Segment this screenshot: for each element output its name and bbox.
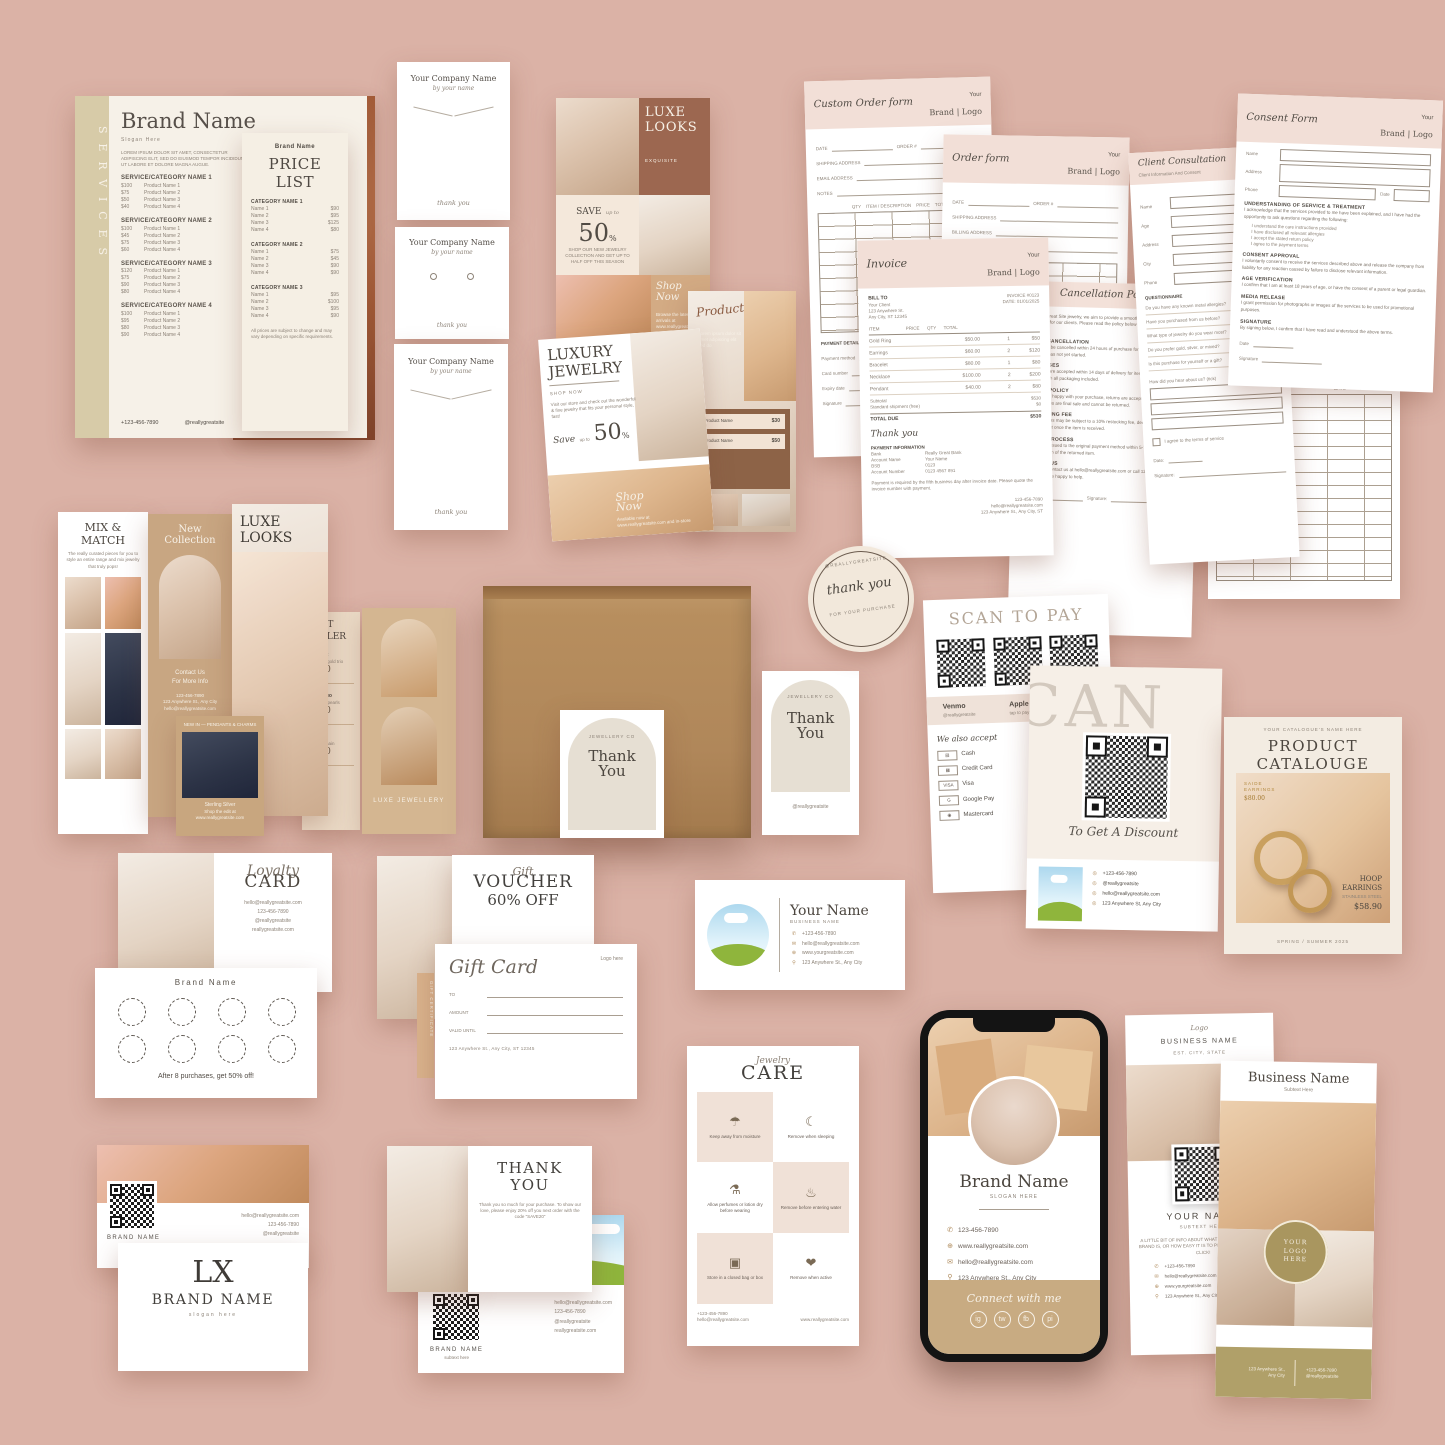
care-tile-grid: ☂ Keep away from moisture ☾ Remove when …: [697, 1092, 849, 1304]
logo-landscape-circle: [707, 904, 769, 966]
invoice-page: Invoice YourBrand | Logo BILL TO Your Cl…: [857, 237, 1054, 558]
care-title: CARE: [697, 1062, 849, 1084]
logo-script: Logo: [1134, 1023, 1264, 1035]
phone-brand-name: Brand Name: [928, 1172, 1100, 1192]
thank-you-card-front: THANK YOU Thank you so much for your pur…: [468, 1146, 592, 1292]
logo-landscape-thumb: [1038, 867, 1083, 922]
display-stand-card: LUXE JEWELLERY: [362, 608, 456, 834]
business-name-sub: BUSINESS NAME: [790, 919, 869, 925]
care-icon: ♨: [805, 1185, 817, 1201]
template-bundle-collage: SERVICES Brand Name Slogan Here LOREM IP…: [0, 0, 1445, 1445]
social-icons: igtwfbpi: [928, 1311, 1100, 1328]
connect-with-me: Connect with me: [928, 1292, 1100, 1305]
mix-match-title: MIX &: [65, 521, 141, 534]
scan-discount-card: SCAN To Get A Discount ◎+123-456-7890◎@r…: [1026, 665, 1223, 931]
gift-card-script: Gift Card: [449, 956, 538, 978]
rack-business-name: BUSINESS NAME: [1134, 1036, 1264, 1048]
scan-ghost-text: SCAN: [1026, 670, 1168, 741]
brand-logo: Brand | Logo: [987, 268, 1040, 278]
thank-you-photo-panel: [387, 1146, 471, 1292]
luxury-subtitle: SHOP NOW: [550, 385, 636, 397]
thank-you-script: thank you: [394, 508, 508, 517]
save-label: SAVE: [576, 207, 601, 217]
jewelry-care-card: Jewelry CARE ☂ Keep away from moisture ☾…: [687, 1046, 859, 1346]
contact-cta: Contact Us: [155, 669, 225, 678]
thanks-back-brand: BRAND NAME: [430, 1346, 483, 1355]
lx-brand-name: BRAND NAME: [118, 1292, 308, 1308]
qr-code: [430, 1291, 482, 1343]
discount-script: To Get A Discount: [1027, 823, 1219, 840]
care-icon: ☂: [729, 1114, 741, 1130]
services-handle: @reallygreatsite: [184, 420, 224, 428]
product-catalogue-cover: YOUR CATALOGUE'S NAME HERE PRODUCT CATAL…: [1224, 717, 1402, 954]
voucher-title: VOUCHER: [452, 872, 594, 892]
catalogue-footer: SPRING / SUMMER 2025: [1224, 939, 1402, 945]
necklace-hook-lines: [412, 384, 490, 434]
thanks-back-contacts: hello@reallygreatsite.com123-456-7890@re…: [554, 1297, 612, 1361]
loyalty-card-back: Brand Name After 8 purchases, get 50% of…: [95, 968, 317, 1098]
thank-you-title: THANK: [478, 1160, 582, 1177]
luxe-story-title: LUXE: [240, 514, 281, 530]
invoice-title: Invoice: [867, 257, 908, 271]
photo-tile: [65, 633, 101, 725]
pendant-collage-card: NEW IN — PENDANTS & CHARMS Sterling Silv…: [176, 716, 264, 836]
rack-front-business: Business Name: [1227, 1071, 1371, 1088]
price-category: CATEGORY NAME 2 Name 1$75 Name 2$45 Name…: [251, 242, 339, 277]
brand-logo: Brand | Logo: [1067, 167, 1120, 177]
jewellery-co-label: JEWELLERY CO: [568, 734, 656, 740]
catalogue-title: PRODUCT: [1236, 737, 1390, 755]
thank-you-sticker: @REALLYGREATSITE thank you FOR YOUR PURC…: [801, 539, 921, 659]
brand-logo: Brand | Logo: [1380, 128, 1433, 139]
loyalty-back-brand: Brand Name: [105, 978, 307, 989]
display-caption: LUXE JEWELLERY: [370, 797, 448, 806]
photo-model-white: [639, 195, 710, 275]
voucher-discount: 60% OFF: [452, 892, 594, 909]
client-consult-title: Client Consultation: [1138, 154, 1227, 170]
box-thank-you-label: JEWELLERY CO Thank You: [560, 710, 664, 838]
photo-tile: [65, 729, 101, 779]
luxury-body: Visit our store and check out the wonder…: [551, 396, 638, 420]
lx-monogram: LX: [118, 1255, 308, 1290]
phone-notch: [973, 1018, 1055, 1032]
lx-back-contacts: hello@reallygreatsite.com123-456-7890@re…: [241, 1211, 299, 1243]
discount-contact-list: ◎+123-456-7890◎@reallygreatsite◎hello@re…: [1090, 867, 1207, 923]
photo-arch-portrait: [159, 555, 221, 659]
qr-code: [933, 635, 989, 691]
invoice-thanks: Thank you: [871, 427, 1042, 442]
luxe-title: LUXE: [645, 106, 704, 121]
care-icon: ❤: [806, 1255, 817, 1271]
brand-logo: Brand | Logo: [929, 107, 982, 117]
gift-voucher-card: Gift VOUCHER 60% OFF: [452, 855, 594, 952]
price-list-brand: Brand Name: [251, 143, 339, 152]
care-website: www.reallygreatsite.com: [800, 1317, 849, 1323]
catalogue-photo: SAIDE EARRINGS $80.00 HOOP EARRINGS STAI…: [1236, 773, 1390, 923]
lx-slogan: slogan here: [118, 1312, 308, 1319]
photo-pendants: [182, 732, 258, 798]
scan-to-pay-title: SCAN TO PAY: [932, 604, 1100, 629]
photo-tile: [105, 729, 141, 779]
gift-card: Gift Card Logo here TO AMOUNT VALID UNTI…: [435, 944, 637, 1099]
mix-match-body: The really curated pieces for you to sty…: [65, 551, 141, 569]
qr-code-large: [1082, 732, 1172, 822]
hoop-earring: [1288, 869, 1332, 913]
order-form-title: Order form: [952, 152, 1009, 165]
tag-handle: @reallygreatsite: [771, 804, 850, 811]
photo-tile: [105, 633, 141, 725]
photo-outfit: [630, 329, 709, 462]
photo-tile: [65, 577, 101, 629]
price-category: CATEGORY NAME 1 Name 1$90 Name 2$95 Name…: [251, 199, 339, 234]
consent-title: Consent Form: [1246, 112, 1318, 127]
company-name: Your Company Name: [401, 238, 503, 249]
luxe-subtitle: EXQUISITE: [645, 158, 704, 164]
business-card-contacts: ✆+123-456-7890✉hello@reallygreatsite.com…: [790, 931, 869, 967]
photo-woman-posed: [1218, 1101, 1376, 1232]
gift-certificate-strip: GIFT CERTIFICATE: [417, 973, 434, 1078]
box-lid-edge: [483, 586, 751, 599]
care-email: hello@reallygreatsite.com: [697, 1317, 749, 1323]
phone-mockup: Brand Name SLOGAN HERE ✆123-456-7890⊕www…: [920, 1010, 1108, 1362]
thank-you-hang-tag: JEWELLERY CO Thank You @reallygreatsite: [762, 671, 859, 835]
luxe-looks-grid-post: LUXE LOOKS EXQUISITE SAVE up to 50% SHOP…: [556, 98, 710, 343]
necklace-display-card-2: Your Company Name by your name thank you: [394, 344, 508, 530]
save-script: Save: [553, 435, 576, 447]
photo-necklace-model: [744, 291, 796, 401]
qr-code: [107, 1181, 157, 1231]
company-byline: by your name: [403, 85, 504, 94]
logo-placeholder: Logo here: [599, 956, 623, 963]
price-category-list: CATEGORY NAME 1 Name 1$90 Name 2$95 Name…: [251, 199, 339, 320]
intro-text: LOREM IPSUM DOLOR SIT AMET, CONSECTETUR …: [121, 150, 251, 168]
mix-match-card: MIX & MATCH The really curated pieces fo…: [58, 512, 148, 834]
necklace-display-card-1: Your Company Name by your name thank you: [397, 62, 510, 220]
gift-card-address: 123 Anywhere St., Any City, ST 12345: [449, 1046, 623, 1052]
brand-name-title: Brand Name: [121, 109, 355, 133]
price-list-card: Brand Name PRICE LIST CATEGORY NAME 1 Na…: [242, 133, 348, 431]
price-category: CATEGORY NAME 3 Name 1$95 Name 2$100 Nam…: [251, 285, 339, 320]
photo-tile: [105, 577, 141, 629]
loyalty-contacts: hello@reallygreatsite.com123-456-7890@re…: [220, 900, 326, 934]
earring-display-card: Your Company Name by your name thank you: [395, 227, 509, 339]
photo-woman-portrait: [556, 98, 639, 195]
person-name: Your Name: [790, 903, 869, 919]
services-side-label: SERVICES: [75, 126, 109, 265]
jewellery-co-label: JEWELLERY CO: [771, 694, 850, 700]
business-card: Your Name BUSINESS NAME ✆+123-456-7890✉h…: [695, 880, 905, 990]
arch-display-window: [381, 707, 437, 785]
arch-display-window: [381, 619, 437, 697]
rack-card-front: Business Name Subtext Here YOUR LOGO HER…: [1215, 1061, 1377, 1400]
custom-order-title: Custom Order form: [814, 96, 913, 111]
consent-form: Consent Form YourBrand | Logo Name Addre…: [1228, 94, 1443, 393]
stamp-circles: [105, 998, 307, 1063]
price-list-title: PRICE LIST: [251, 155, 339, 191]
phone-slogan: SLOGAN HERE: [928, 1194, 1100, 1201]
pendant-caption: Sterling Silver: [182, 802, 258, 809]
photo-jewelry-detail-2: [742, 494, 790, 526]
loyalty-title: CARD: [220, 872, 326, 892]
company-name: Your Company Name: [400, 357, 502, 368]
earring-holes: [401, 273, 503, 280]
company-byline: by your name: [401, 249, 503, 258]
care-icon: ☾: [805, 1114, 817, 1130]
save-percent: 50: [578, 219, 609, 247]
care-icon: ▣: [729, 1255, 741, 1271]
avatar: [968, 1076, 1060, 1168]
luxury-jewelry-flyer: LUXURY JEWELRY SHOP NOW Visit our store …: [538, 329, 714, 542]
company-byline: by your name: [400, 368, 502, 377]
lx-back-brand: BRAND NAME: [107, 1234, 160, 1243]
catalogue-header: YOUR CATALOGUE'S NAME HERE: [1236, 727, 1390, 733]
thank-you-script: thank you: [397, 199, 510, 208]
thank-you-body: Thank you so much for your purchase. To …: [478, 1202, 582, 1220]
phone-contact-list: ✆123-456-7890⊕www.reallygreatsite.com✉he…: [928, 1218, 1100, 1285]
hoop-earrings-tag: HOOP: [1342, 875, 1382, 885]
lx-card-front: LX BRAND NAME slogan here: [118, 1243, 308, 1371]
thank-you-script: thank you: [395, 322, 509, 331]
company-name: Your Company Name: [403, 74, 504, 85]
services-phone: +123-456-7890: [121, 420, 158, 428]
invoice-rows: Gold Ring$50.001$50Earrings$60.002$120Br…: [869, 333, 1041, 396]
loyalty-note: After 8 purchases, get 50% off!: [105, 1072, 307, 1082]
necklace-hook-lines: [415, 101, 492, 131]
pendant-top-caption: NEW IN — PENDANTS & CHARMS: [182, 722, 258, 728]
price-list-footnote: All prices are subject to change and may…: [251, 328, 339, 340]
care-icon: ⚗: [729, 1182, 741, 1198]
